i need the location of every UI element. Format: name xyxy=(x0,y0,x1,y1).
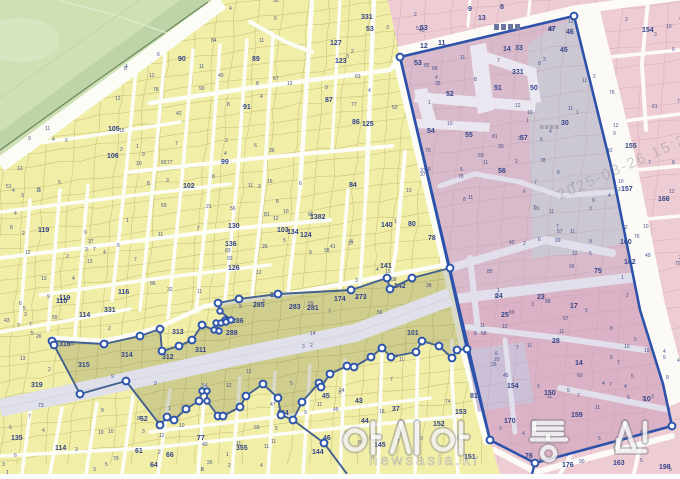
svg-text:91: 91 xyxy=(534,206,540,212)
svg-text:4: 4 xyxy=(260,463,263,469)
svg-text:8: 8 xyxy=(500,4,504,11)
svg-text:45: 45 xyxy=(503,373,509,379)
svg-text:87: 87 xyxy=(325,97,333,104)
svg-text:10: 10 xyxy=(136,161,142,167)
svg-text:11: 11 xyxy=(199,64,204,70)
svg-text:3: 3 xyxy=(531,302,534,308)
svg-text:50: 50 xyxy=(273,0,279,4)
svg-text:6: 6 xyxy=(254,143,257,149)
svg-text:106: 106 xyxy=(107,153,119,160)
svg-text:5: 5 xyxy=(589,251,592,257)
svg-text:9: 9 xyxy=(84,230,87,236)
svg-text:19: 19 xyxy=(527,110,533,116)
svg-text:51: 51 xyxy=(6,184,12,190)
svg-text:84: 84 xyxy=(211,38,217,44)
svg-text:56: 56 xyxy=(498,168,506,175)
svg-text:78: 78 xyxy=(428,235,436,242)
svg-text:90: 90 xyxy=(199,86,205,92)
svg-text:89: 89 xyxy=(252,56,260,63)
svg-text:10: 10 xyxy=(179,423,185,429)
svg-text:119: 119 xyxy=(59,295,70,302)
svg-text:73: 73 xyxy=(38,403,44,409)
svg-text:37: 37 xyxy=(88,239,94,245)
svg-text:105: 105 xyxy=(108,126,120,133)
svg-text:10: 10 xyxy=(447,121,453,127)
svg-text:53: 53 xyxy=(414,60,422,67)
svg-text:99: 99 xyxy=(555,238,561,244)
svg-text:7: 7 xyxy=(29,322,32,328)
svg-text:4: 4 xyxy=(608,193,611,199)
svg-text:90: 90 xyxy=(579,459,585,465)
svg-text:2: 2 xyxy=(158,450,161,456)
svg-text:1: 1 xyxy=(168,406,171,412)
svg-text:7: 7 xyxy=(497,58,500,64)
svg-text:59: 59 xyxy=(161,203,167,209)
svg-text:81: 81 xyxy=(492,134,498,140)
svg-text:53: 53 xyxy=(366,26,374,33)
svg-text:10: 10 xyxy=(643,396,651,403)
svg-text:114: 114 xyxy=(55,445,66,452)
svg-text:281: 281 xyxy=(307,305,319,312)
svg-text:78: 78 xyxy=(153,87,159,93)
svg-text:45: 45 xyxy=(560,47,568,54)
svg-text:9: 9 xyxy=(613,131,616,137)
svg-text:6: 6 xyxy=(9,425,12,431)
svg-text:93: 93 xyxy=(227,256,233,262)
svg-text:9: 9 xyxy=(468,6,472,13)
svg-text:99: 99 xyxy=(221,159,229,166)
svg-text:8: 8 xyxy=(538,61,541,67)
svg-text:26: 26 xyxy=(262,244,268,250)
svg-text:12: 12 xyxy=(515,103,521,109)
svg-text:12: 12 xyxy=(420,43,428,50)
svg-text:11: 11 xyxy=(582,78,587,84)
svg-text:66: 66 xyxy=(166,452,174,459)
svg-text:41: 41 xyxy=(330,244,336,250)
svg-text:5: 5 xyxy=(460,167,463,173)
svg-text:5: 5 xyxy=(275,426,278,432)
svg-text:33: 33 xyxy=(515,45,523,52)
svg-text:319: 319 xyxy=(31,382,43,389)
svg-text:8: 8 xyxy=(672,160,675,166)
svg-text:78: 78 xyxy=(458,174,464,180)
svg-text:1: 1 xyxy=(136,144,139,150)
svg-text:5: 5 xyxy=(58,180,61,186)
svg-text:68: 68 xyxy=(432,66,438,72)
svg-text:198: 198 xyxy=(659,464,671,471)
svg-text:12: 12 xyxy=(25,250,31,256)
svg-text:3: 3 xyxy=(338,390,341,396)
svg-text:2: 2 xyxy=(22,231,25,237)
svg-text:130: 130 xyxy=(228,223,240,230)
svg-text:2: 2 xyxy=(310,343,313,349)
svg-text:2: 2 xyxy=(228,463,231,469)
svg-text:70: 70 xyxy=(675,261,680,267)
svg-text:80: 80 xyxy=(408,221,416,228)
svg-text:3: 3 xyxy=(654,32,657,38)
svg-text:46: 46 xyxy=(566,29,574,36)
svg-text:85: 85 xyxy=(424,63,430,69)
svg-text:6: 6 xyxy=(14,453,17,459)
svg-text:45: 45 xyxy=(322,393,330,400)
svg-text:52: 52 xyxy=(446,91,454,98)
svg-text:12: 12 xyxy=(115,96,121,102)
svg-text:12: 12 xyxy=(256,270,262,276)
svg-text:11: 11 xyxy=(559,329,564,335)
svg-text:4: 4 xyxy=(224,151,227,157)
svg-text:123: 123 xyxy=(335,58,347,65)
svg-text:7: 7 xyxy=(328,309,331,315)
svg-text:134: 134 xyxy=(287,229,299,236)
svg-text:9: 9 xyxy=(154,381,157,387)
svg-text:5: 5 xyxy=(31,331,34,337)
svg-text:11: 11 xyxy=(460,55,465,61)
svg-text:4: 4 xyxy=(602,381,605,387)
svg-text:7: 7 xyxy=(17,323,20,329)
svg-text:47: 47 xyxy=(270,402,276,408)
svg-text:8: 8 xyxy=(474,331,477,337)
svg-text:7: 7 xyxy=(93,247,96,253)
svg-text:12: 12 xyxy=(226,383,232,389)
svg-text:43: 43 xyxy=(355,398,363,405)
svg-text:81: 81 xyxy=(470,393,478,400)
svg-text:2: 2 xyxy=(66,254,69,260)
svg-text:12: 12 xyxy=(572,251,578,257)
svg-text:64: 64 xyxy=(150,462,158,469)
svg-text:176: 176 xyxy=(562,462,574,469)
svg-text:61: 61 xyxy=(652,104,658,110)
svg-text:36: 36 xyxy=(269,148,275,154)
svg-text:2: 2 xyxy=(120,147,123,153)
svg-text:114: 114 xyxy=(79,312,90,319)
svg-text:1: 1 xyxy=(226,452,229,458)
svg-text:1: 1 xyxy=(621,275,624,281)
svg-text:102: 102 xyxy=(183,183,195,190)
svg-text:9: 9 xyxy=(589,239,592,245)
svg-text:4: 4 xyxy=(549,129,552,135)
svg-text:69: 69 xyxy=(478,153,484,159)
svg-text:1: 1 xyxy=(576,110,579,116)
svg-text:311: 311 xyxy=(195,347,206,354)
svg-text:288: 288 xyxy=(226,330,238,337)
svg-text:170: 170 xyxy=(504,418,516,425)
svg-text:70: 70 xyxy=(425,148,431,154)
svg-text:9: 9 xyxy=(537,384,540,390)
svg-text:8: 8 xyxy=(474,77,477,83)
svg-text:5: 5 xyxy=(634,337,637,343)
svg-text:3: 3 xyxy=(355,278,358,284)
svg-text:155: 155 xyxy=(625,143,637,150)
svg-text:23: 23 xyxy=(537,294,545,301)
svg-text:355: 355 xyxy=(236,445,248,452)
svg-text:8: 8 xyxy=(428,167,431,173)
svg-text:45: 45 xyxy=(333,407,339,413)
svg-text:9: 9 xyxy=(304,410,307,416)
svg-text:11: 11 xyxy=(45,126,50,132)
svg-text:47: 47 xyxy=(548,26,556,33)
svg-text:7: 7 xyxy=(175,141,178,147)
svg-text:44: 44 xyxy=(361,418,369,425)
svg-text:9: 9 xyxy=(111,374,114,380)
svg-text:8: 8 xyxy=(256,81,259,87)
svg-text:2: 2 xyxy=(625,17,628,23)
svg-text:53: 53 xyxy=(420,25,428,32)
svg-text:166: 166 xyxy=(658,196,670,203)
svg-text:4: 4 xyxy=(229,6,232,12)
svg-text:7: 7 xyxy=(197,226,200,232)
svg-text:79: 79 xyxy=(113,456,119,462)
svg-text:6: 6 xyxy=(540,137,543,143)
svg-text:11: 11 xyxy=(568,106,573,112)
svg-text:4: 4 xyxy=(624,384,627,390)
svg-text:83: 83 xyxy=(225,248,231,254)
svg-text:5: 5 xyxy=(627,395,630,401)
svg-text:3: 3 xyxy=(386,25,389,31)
svg-text:12: 12 xyxy=(287,81,293,87)
svg-text:2: 2 xyxy=(515,159,518,165)
svg-text:12: 12 xyxy=(273,216,279,222)
svg-text:174: 174 xyxy=(334,296,346,303)
svg-text:157: 157 xyxy=(621,186,633,193)
svg-text:10: 10 xyxy=(666,24,672,30)
svg-text:11: 11 xyxy=(595,405,600,411)
svg-text:86: 86 xyxy=(150,281,156,287)
svg-text:11: 11 xyxy=(197,289,202,295)
svg-text:67: 67 xyxy=(273,76,279,82)
svg-text:12: 12 xyxy=(87,259,93,265)
svg-text:55: 55 xyxy=(465,132,473,139)
svg-text:57: 57 xyxy=(563,316,569,322)
svg-text:11: 11 xyxy=(271,439,276,445)
svg-text:76: 76 xyxy=(609,90,615,96)
svg-text:2: 2 xyxy=(225,138,228,144)
svg-text:10: 10 xyxy=(644,348,650,354)
svg-text:11: 11 xyxy=(399,357,404,363)
svg-text:135: 135 xyxy=(11,435,23,442)
svg-text:116: 116 xyxy=(118,289,129,296)
svg-text:9: 9 xyxy=(47,294,50,300)
svg-text:8: 8 xyxy=(147,181,150,187)
svg-text:5: 5 xyxy=(290,381,293,387)
svg-text:5: 5 xyxy=(585,308,588,314)
svg-text:2: 2 xyxy=(48,367,51,373)
svg-text:5: 5 xyxy=(283,238,286,244)
svg-text:25: 25 xyxy=(501,312,509,319)
svg-text:313: 313 xyxy=(172,329,184,336)
svg-text:119: 119 xyxy=(38,227,49,234)
svg-text:75: 75 xyxy=(594,268,602,275)
svg-text:7: 7 xyxy=(134,257,137,263)
svg-text:3: 3 xyxy=(499,426,502,432)
svg-text:14: 14 xyxy=(310,331,316,337)
svg-text:314: 314 xyxy=(121,352,133,359)
svg-text:9: 9 xyxy=(239,304,242,310)
svg-text:4: 4 xyxy=(72,276,75,282)
svg-text:4: 4 xyxy=(103,250,106,256)
svg-text:17: 17 xyxy=(570,303,578,310)
svg-text:10: 10 xyxy=(108,429,114,435)
svg-text:144: 144 xyxy=(312,449,324,456)
svg-text:28: 28 xyxy=(324,248,330,254)
svg-text:1: 1 xyxy=(394,219,397,225)
svg-text:8: 8 xyxy=(463,197,466,203)
svg-text:2: 2 xyxy=(108,326,111,332)
svg-text:8: 8 xyxy=(124,66,127,72)
svg-text:89: 89 xyxy=(509,310,515,316)
svg-text:3: 3 xyxy=(543,57,546,63)
svg-text:91: 91 xyxy=(243,104,251,111)
svg-text:12: 12 xyxy=(149,73,155,79)
svg-text:2: 2 xyxy=(523,241,526,247)
svg-text:141: 141 xyxy=(380,263,392,270)
svg-text:11: 11 xyxy=(480,323,485,329)
svg-text:2: 2 xyxy=(258,184,261,190)
svg-text:69: 69 xyxy=(254,425,260,431)
svg-text:11: 11 xyxy=(527,343,532,349)
svg-text:10: 10 xyxy=(283,209,289,215)
svg-text:1: 1 xyxy=(428,100,431,106)
svg-text:3: 3 xyxy=(85,247,88,253)
svg-text:4: 4 xyxy=(42,428,45,434)
svg-text:95: 95 xyxy=(569,264,575,270)
svg-text:30: 30 xyxy=(561,120,569,127)
svg-text:77: 77 xyxy=(197,435,205,442)
svg-text:85: 85 xyxy=(487,269,493,275)
svg-text:38: 38 xyxy=(426,283,432,289)
svg-text:2: 2 xyxy=(351,49,354,55)
svg-text:4: 4 xyxy=(376,267,379,273)
svg-text:12: 12 xyxy=(159,433,165,439)
svg-text:2: 2 xyxy=(593,74,596,80)
svg-text:10: 10 xyxy=(98,430,104,436)
svg-text:4: 4 xyxy=(14,211,17,217)
svg-text:18: 18 xyxy=(379,409,385,415)
svg-text:14: 14 xyxy=(575,360,583,367)
svg-text:59: 59 xyxy=(52,315,58,321)
svg-text:4: 4 xyxy=(522,431,525,437)
svg-text:1382: 1382 xyxy=(310,214,326,221)
svg-text:125: 125 xyxy=(362,121,374,128)
svg-text:3: 3 xyxy=(651,394,654,400)
svg-text:77: 77 xyxy=(167,160,173,166)
svg-text:86: 86 xyxy=(352,119,360,126)
svg-text:9: 9 xyxy=(325,85,328,91)
svg-text:6: 6 xyxy=(117,243,120,249)
svg-text:68: 68 xyxy=(481,331,487,337)
svg-text:11: 11 xyxy=(36,188,41,194)
svg-text:3: 3 xyxy=(302,344,305,350)
svg-text:13: 13 xyxy=(41,276,47,282)
svg-text:10: 10 xyxy=(643,224,649,230)
svg-text:56: 56 xyxy=(377,310,383,316)
svg-text:9: 9 xyxy=(309,250,312,256)
svg-text:88: 88 xyxy=(545,299,551,305)
svg-text:283: 283 xyxy=(289,304,301,311)
svg-text:84: 84 xyxy=(349,182,357,189)
svg-text:77: 77 xyxy=(351,102,357,108)
svg-text:159: 159 xyxy=(571,412,583,419)
svg-text:11: 11 xyxy=(483,160,488,166)
svg-text:1: 1 xyxy=(126,218,129,224)
svg-text:3: 3 xyxy=(21,193,24,199)
svg-text:12: 12 xyxy=(669,189,675,195)
svg-text:11: 11 xyxy=(264,444,269,450)
svg-text:90: 90 xyxy=(178,56,186,63)
svg-text:81: 81 xyxy=(264,212,270,218)
svg-text:11: 11 xyxy=(549,209,554,215)
svg-text:5: 5 xyxy=(105,462,108,468)
svg-text:57: 57 xyxy=(557,229,563,235)
svg-text:10: 10 xyxy=(624,344,630,350)
svg-text:13: 13 xyxy=(20,356,26,362)
svg-text:9: 9 xyxy=(28,136,31,142)
svg-text:11: 11 xyxy=(259,38,264,44)
svg-text:37: 37 xyxy=(392,406,400,413)
svg-text:153: 153 xyxy=(455,409,467,416)
svg-text:12: 12 xyxy=(502,324,508,330)
svg-text:5: 5 xyxy=(598,436,601,442)
svg-text:13: 13 xyxy=(478,15,486,22)
svg-text:7: 7 xyxy=(516,345,519,351)
svg-text:5: 5 xyxy=(663,355,666,361)
svg-text:124: 124 xyxy=(300,232,312,239)
svg-text:14: 14 xyxy=(503,46,511,53)
svg-text:3: 3 xyxy=(142,429,145,435)
svg-text:136: 136 xyxy=(225,241,237,248)
svg-text:83: 83 xyxy=(161,160,167,166)
svg-text:8: 8 xyxy=(610,326,613,332)
svg-text:9: 9 xyxy=(142,152,145,158)
svg-text:6: 6 xyxy=(538,237,541,243)
svg-text:43: 43 xyxy=(4,318,10,324)
svg-text:331: 331 xyxy=(361,14,373,21)
svg-text:40: 40 xyxy=(218,73,224,79)
svg-text:40: 40 xyxy=(202,442,208,448)
svg-text:6: 6 xyxy=(19,301,22,307)
svg-text:5: 5 xyxy=(640,458,643,464)
svg-text:30: 30 xyxy=(498,144,504,150)
svg-text:163: 163 xyxy=(613,460,625,467)
svg-text:5: 5 xyxy=(631,374,634,380)
svg-text:76: 76 xyxy=(634,234,640,240)
svg-text:7: 7 xyxy=(390,377,393,383)
svg-text:3: 3 xyxy=(75,447,78,453)
svg-text:312: 312 xyxy=(162,354,174,361)
svg-text:4: 4 xyxy=(52,137,55,143)
svg-text:6: 6 xyxy=(274,16,277,22)
svg-text:7: 7 xyxy=(577,393,580,399)
svg-text:12: 12 xyxy=(613,123,619,129)
svg-text:331: 331 xyxy=(512,69,524,76)
svg-text:50: 50 xyxy=(530,85,538,92)
svg-text:1: 1 xyxy=(6,470,9,474)
svg-text:49: 49 xyxy=(645,253,651,259)
svg-text:4: 4 xyxy=(12,188,15,194)
svg-text:12: 12 xyxy=(246,369,252,375)
svg-text:10: 10 xyxy=(406,188,412,194)
svg-text:5: 5 xyxy=(567,388,570,394)
svg-text:127: 127 xyxy=(330,40,342,47)
svg-text:150: 150 xyxy=(544,390,556,397)
svg-text:11: 11 xyxy=(570,229,575,235)
svg-text:12: 12 xyxy=(17,166,23,172)
svg-text:6: 6 xyxy=(610,355,613,361)
svg-text:62: 62 xyxy=(140,416,148,423)
svg-text:7: 7 xyxy=(609,382,612,388)
svg-text:315: 315 xyxy=(78,362,90,369)
svg-text:57: 57 xyxy=(520,135,528,142)
svg-text:35: 35 xyxy=(435,81,441,87)
